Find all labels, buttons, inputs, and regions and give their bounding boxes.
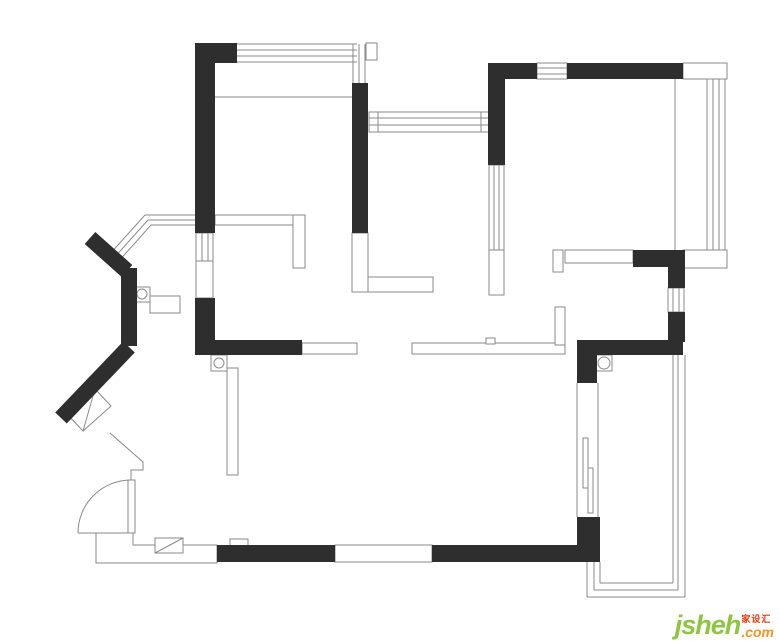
watermark-chinese-label: 家设汇: [741, 615, 771, 624]
floor-plan-canvas: jsheh 家设汇 .com: [0, 0, 780, 641]
watermark-tld: .com: [741, 625, 774, 639]
watermark: jsheh 家设汇 .com: [675, 612, 774, 639]
watermark-brand: jsheh: [675, 612, 741, 639]
floor-plan-svg: [0, 0, 780, 641]
